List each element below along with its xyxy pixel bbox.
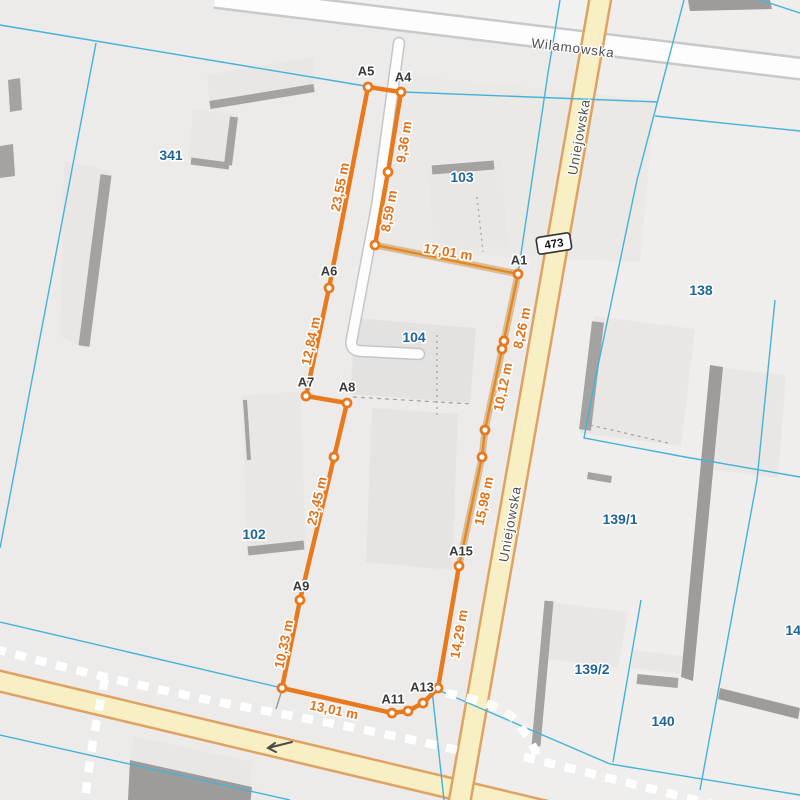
- measurement-point[interactable]: [302, 392, 310, 400]
- building: [366, 408, 458, 570]
- measurement-point[interactable]: [455, 562, 463, 570]
- building-shadow: [191, 161, 229, 166]
- point-label: A15: [449, 544, 473, 559]
- point-label: A5: [358, 64, 375, 79]
- measurement-point[interactable]: [371, 241, 379, 249]
- point-label: A6: [321, 264, 338, 279]
- parcel-number: 138: [689, 282, 713, 298]
- point-label: A4: [395, 70, 412, 85]
- point-label: A13: [410, 680, 434, 695]
- building: [542, 602, 628, 668]
- building: [714, 368, 786, 478]
- parcel-number: 139/2: [574, 661, 609, 677]
- point-label: A8: [339, 380, 356, 395]
- measurement-point[interactable]: [325, 284, 333, 292]
- measurement-point[interactable]: [278, 684, 286, 692]
- point-label: A1: [511, 253, 528, 268]
- measurement-point[interactable]: [434, 684, 442, 692]
- measurement-point[interactable]: [419, 699, 427, 707]
- building-dark: [8, 78, 22, 112]
- parcel-number: 142: [785, 622, 800, 638]
- measurement-point[interactable]: [388, 709, 396, 717]
- building-shadow: [637, 679, 678, 683]
- measurement-point[interactable]: [514, 270, 522, 278]
- measurement-point[interactable]: [296, 596, 304, 604]
- measurement-point[interactable]: [343, 399, 351, 407]
- parcel-number: 102: [242, 526, 266, 542]
- parcel-number: 341: [159, 147, 183, 163]
- measurement-point[interactable]: [478, 453, 486, 461]
- measurement-point[interactable]: [498, 345, 506, 353]
- parcel-number: 104: [402, 329, 426, 345]
- measurement-point[interactable]: [364, 83, 372, 91]
- point-label: A7: [298, 375, 315, 390]
- parcel-number: 103: [450, 169, 474, 185]
- measurement-point[interactable]: [384, 168, 392, 176]
- measurement-point[interactable]: [404, 707, 412, 715]
- parcel-number: 140: [651, 713, 675, 729]
- point-label: A9: [293, 579, 310, 594]
- point-label: A11: [381, 692, 404, 707]
- measurement-point[interactable]: [481, 426, 489, 434]
- map-canvas[interactable]: Wilamowska Uniejowska Uniejowska 473 341…: [0, 0, 800, 800]
- parcel-shade-103: [380, 75, 655, 262]
- parcel-number: 139/1: [602, 511, 637, 527]
- building-shadow: [248, 545, 304, 551]
- measurement-point[interactable]: [330, 453, 338, 461]
- building-dark: [0, 144, 15, 178]
- measurement-point[interactable]: [397, 88, 405, 96]
